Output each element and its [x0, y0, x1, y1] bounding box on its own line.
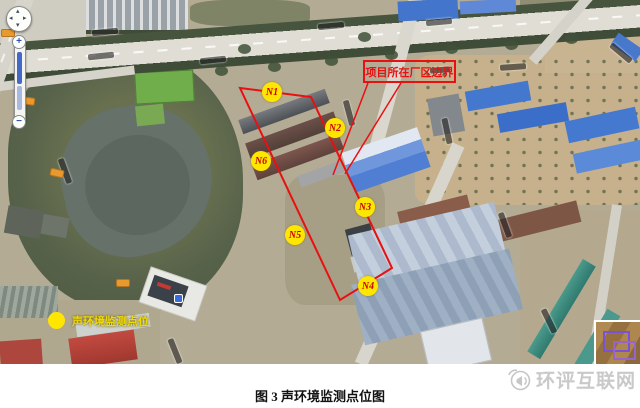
figure-page: 项目所在厂区边界 N1N2N3N4N5N6 声环境监测点位 ▴ ▾ ◂ ▸ + … [0, 0, 640, 408]
legend-monitoring-point-icon [48, 312, 65, 329]
pan-down-icon: ▾ [16, 22, 20, 29]
boundary-label-text: 项目所在厂区边界 [366, 64, 454, 80]
monitoring-point-N6: N6 [251, 151, 271, 171]
monitoring-points-layer: N1N2N3N4N5N6 [0, 0, 640, 364]
legend: 声环境监测点位 [48, 312, 149, 329]
monitoring-point-N2: N2 [325, 118, 345, 138]
pan-right-icon: ▸ [23, 15, 27, 22]
megaphone-logo-icon [506, 366, 533, 393]
map-zoom-control[interactable]: + − [12, 35, 26, 129]
watermark: 环评互联网 [506, 366, 636, 393]
zoom-slider-level[interactable] [17, 52, 22, 84]
inset-extent-rect [613, 341, 636, 360]
monitoring-point-N3: N3 [355, 197, 375, 217]
monitoring-point-N5: N5 [285, 225, 305, 245]
monitoring-point-N4: N4 [358, 276, 378, 296]
zoom-out-button[interactable]: − [12, 115, 26, 129]
pan-up-icon: ▴ [16, 8, 20, 15]
zoom-slider-level[interactable] [17, 86, 22, 110]
boundary-label-box: 项目所在厂区边界 [363, 60, 456, 83]
zoom-in-button[interactable]: + [12, 35, 26, 49]
inset-overview-map[interactable] [594, 320, 640, 364]
pan-left-icon: ◂ [9, 15, 13, 22]
watermark-text: 环评互联网 [536, 366, 636, 393]
satellite-map: 项目所在厂区边界 N1N2N3N4N5N6 声环境监测点位 ▴ ▾ ◂ ▸ + … [0, 0, 640, 364]
monitoring-point-N1: N1 [262, 82, 282, 102]
map-pan-control[interactable]: ▴ ▾ ◂ ▸ [6, 6, 32, 32]
legend-label: 声环境监测点位 [72, 313, 149, 329]
